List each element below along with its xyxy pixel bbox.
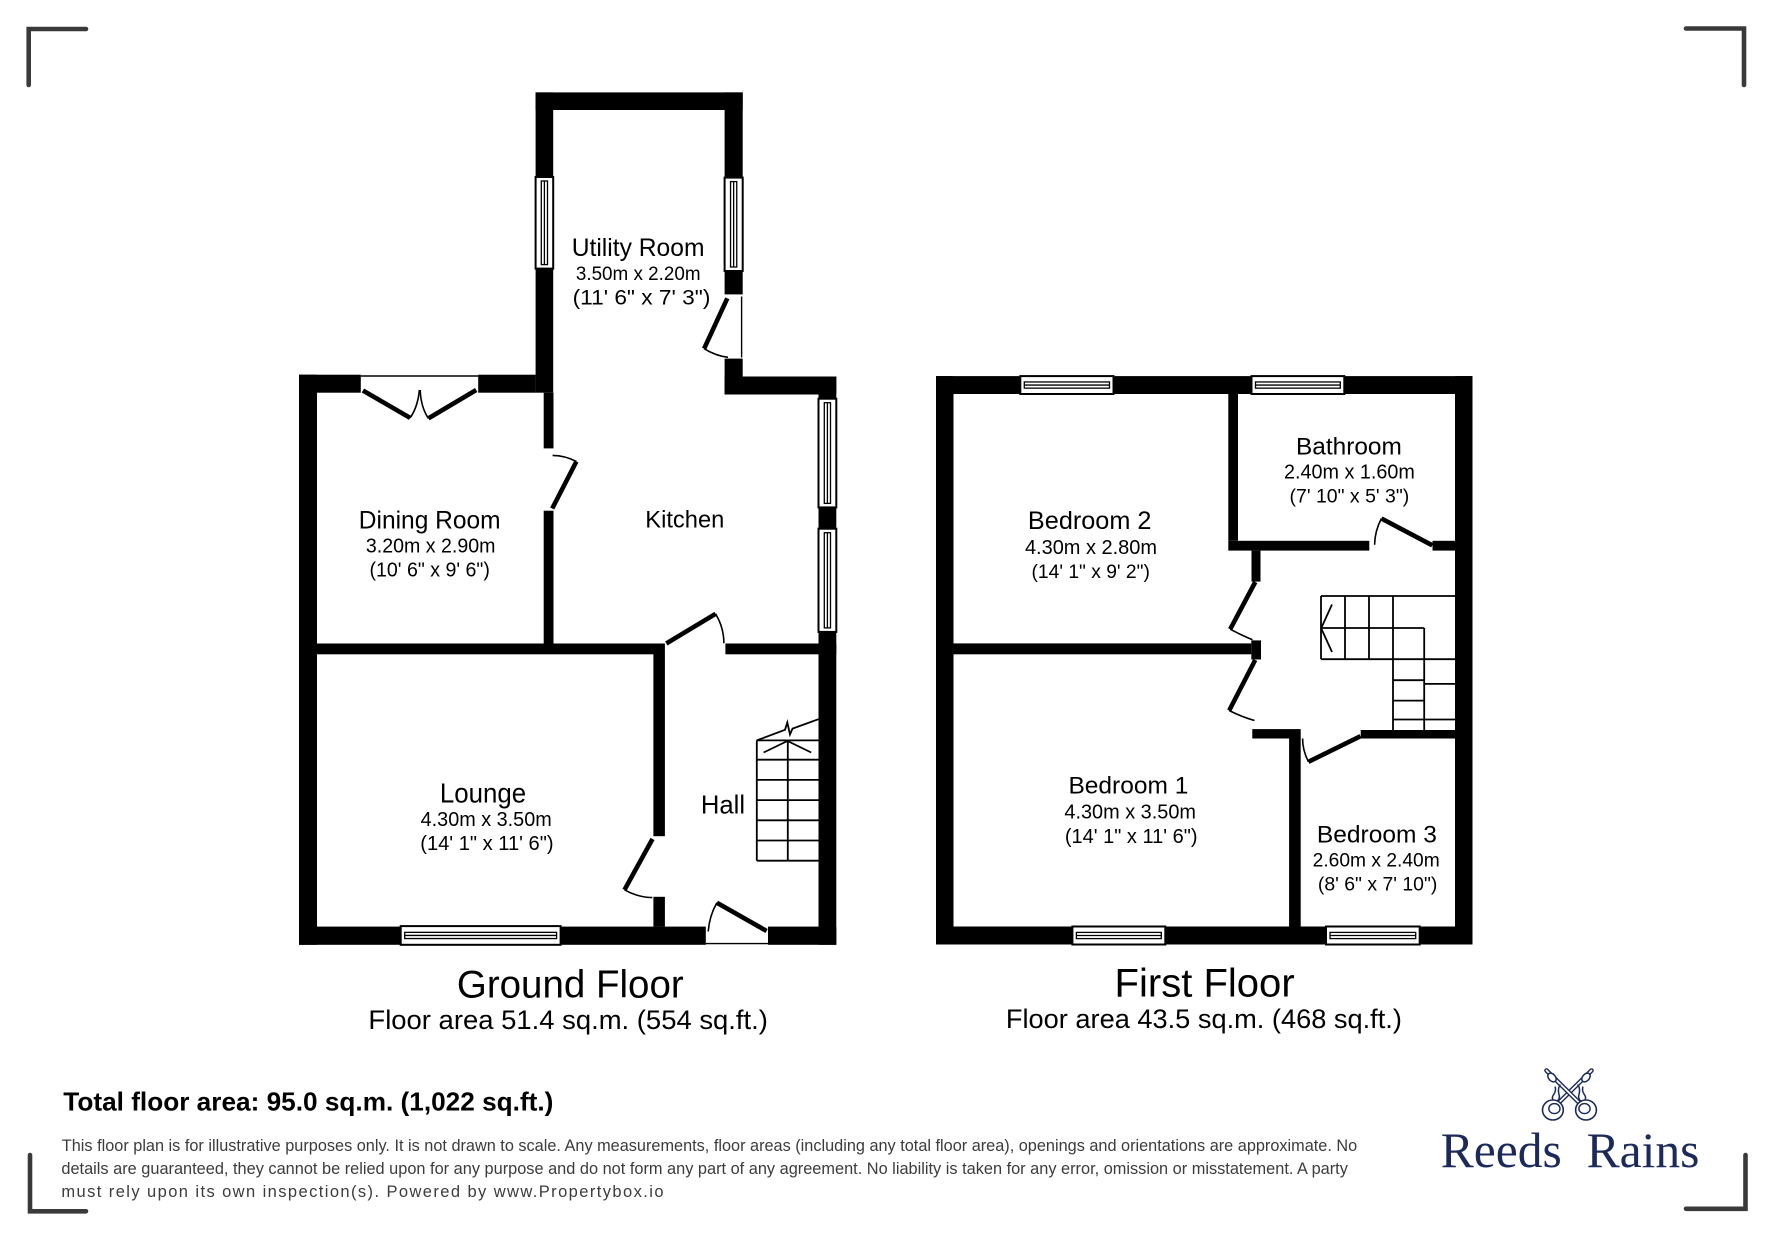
- svg-text:Hall: Hall: [701, 789, 745, 819]
- svg-text:4.30m x 3.50m: 4.30m x 3.50m: [421, 809, 552, 831]
- svg-text:3.50m x 2.20m: 3.50m x 2.20m: [576, 264, 701, 285]
- svg-text:Ground Floor: Ground Floor: [457, 964, 684, 1007]
- svg-text:(14' 1" x 9' 2"): (14' 1" x 9' 2"): [1032, 561, 1150, 583]
- svg-text:Floor area 51.4 sq.m. (554 sq.: Floor area 51.4 sq.m. (554 sq.ft.): [368, 1005, 768, 1035]
- svg-text:2.60m x 2.40m: 2.60m x 2.40m: [1313, 851, 1440, 872]
- svg-text:must rely upon its own inspect: must rely upon its own inspection(s). Po…: [61, 1183, 663, 1201]
- svg-text:Bedroom 2: Bedroom 2: [1028, 507, 1152, 535]
- svg-text:First Floor: First Floor: [1115, 962, 1295, 1006]
- svg-text:(7' 10" x 5' 3"): (7' 10" x 5' 3"): [1290, 486, 1410, 508]
- svg-text:Dining Room: Dining Room: [359, 507, 501, 535]
- svg-text:2.40m x 1.60m: 2.40m x 1.60m: [1284, 462, 1415, 484]
- svg-text:(11' 6" x 7' 3"): (11' 6" x 7' 3"): [573, 287, 711, 310]
- svg-text:4.30m x 2.80m: 4.30m x 2.80m: [1025, 537, 1157, 559]
- svg-text:3.20m x 2.90m: 3.20m x 2.90m: [366, 535, 496, 557]
- svg-text:Total floor area: 95.0 sq.m. (: Total floor area: 95.0 sq.m. (1,022 sq.f…: [63, 1086, 553, 1116]
- svg-text:Bedroom 1: Bedroom 1: [1068, 773, 1188, 800]
- svg-text:Bathroom: Bathroom: [1296, 434, 1402, 461]
- svg-text:Kitchen: Kitchen: [645, 507, 724, 534]
- svg-text:Utility Room: Utility Room: [572, 234, 705, 262]
- svg-text:(14' 1" x 11' 6"): (14' 1" x 11' 6"): [1065, 826, 1198, 848]
- svg-text:This floor plan is for illustr: This floor plan is for illustrative purp…: [62, 1137, 1357, 1155]
- svg-text:Floor area 43.5 sq.m. (468 sq.: Floor area 43.5 sq.m. (468 sq.ft.): [1006, 1004, 1402, 1034]
- svg-text:(10' 6" x 9' 6"): (10' 6" x 9' 6"): [370, 559, 490, 581]
- svg-text:details are guaranteed, they c: details are guaranteed, they cannot be r…: [61, 1160, 1348, 1178]
- svg-text:Lounge: Lounge: [440, 777, 526, 808]
- svg-text:(8' 6" x 7' 10"): (8' 6" x 7' 10"): [1318, 873, 1438, 895]
- svg-text:Reeds Rains: Reeds Rains: [1441, 1122, 1700, 1178]
- svg-text:4.30m x 3.50m: 4.30m x 3.50m: [1064, 801, 1196, 823]
- svg-text:Bedroom 3: Bedroom 3: [1317, 821, 1437, 848]
- svg-text:(14' 1" x 11' 6"): (14' 1" x 11' 6"): [420, 833, 553, 855]
